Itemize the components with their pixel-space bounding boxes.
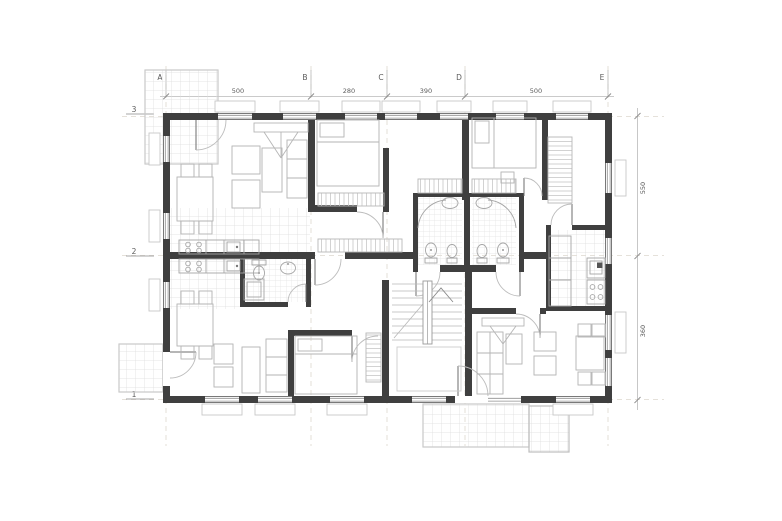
grid-column-labels: A B C D E bbox=[157, 73, 604, 82]
floor-plan-drawing: A B C D E 3 2 1 500 280 390 500 550 360 bbox=[0, 0, 782, 521]
sofa-bottom-left bbox=[266, 339, 287, 392]
wardrobe-bedroom-1 bbox=[318, 193, 384, 206]
wardrobe-bath-left bbox=[418, 179, 462, 193]
armchair bbox=[232, 146, 260, 174]
grid-row-label-2: 2 bbox=[132, 247, 137, 256]
walls bbox=[163, 113, 612, 403]
grid-column-label-c: C bbox=[378, 73, 383, 82]
kitchen-floor-right bbox=[551, 230, 605, 306]
stair-landing bbox=[397, 347, 461, 391]
grid-column-label-b: B bbox=[302, 73, 307, 82]
dining-set-bottom-right bbox=[576, 324, 605, 385]
wardrobe-closet-room bbox=[548, 137, 572, 203]
coffee-table bbox=[534, 332, 556, 351]
kitchen-floor-lower bbox=[170, 259, 240, 309]
sofa-top-left bbox=[287, 140, 307, 198]
sofa-bottom-right bbox=[477, 332, 522, 394]
bathroom-floor-lower bbox=[245, 259, 306, 302]
bed-top-right bbox=[472, 118, 536, 183]
bed-bottom-left bbox=[295, 336, 357, 394]
wardrobe-bath-right bbox=[472, 179, 516, 193]
coffee-table bbox=[242, 347, 260, 393]
dim-top-1: 500 bbox=[232, 87, 244, 95]
wardrobe-bedroom-3 bbox=[366, 333, 381, 382]
staircase bbox=[392, 281, 462, 391]
floor-plan-canvas: A B C D E 3 2 1 500 280 390 500 550 360 bbox=[0, 0, 782, 521]
wardrobe-corridor bbox=[318, 239, 402, 252]
armchair bbox=[214, 367, 233, 387]
coffee-table bbox=[534, 356, 556, 375]
armchair bbox=[232, 180, 260, 208]
entry-porch bbox=[423, 404, 529, 447]
dimension-labels-right: 550 360 bbox=[639, 182, 647, 337]
stair-direction-arrow bbox=[429, 288, 453, 302]
dim-right-1: 550 bbox=[639, 182, 647, 194]
dim-top-2: 280 bbox=[343, 87, 355, 95]
dim-top-3: 390 bbox=[420, 87, 432, 95]
grid-column-label-d: D bbox=[456, 73, 462, 82]
bed-top-left bbox=[317, 120, 379, 186]
dim-right-2: 360 bbox=[639, 325, 647, 337]
armchair bbox=[214, 344, 233, 364]
grid-row-label-3: 3 bbox=[132, 105, 137, 114]
balcony-bottom-left bbox=[119, 344, 163, 392]
dim-top-4: 500 bbox=[530, 87, 542, 95]
grid-column-label-e: E bbox=[600, 73, 605, 82]
